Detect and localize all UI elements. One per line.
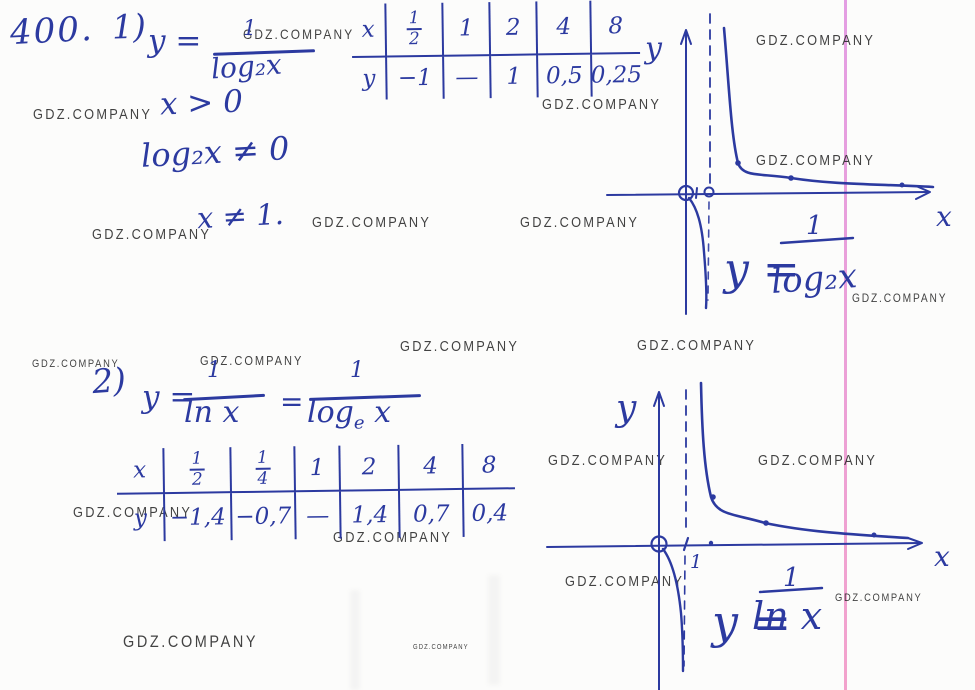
- curve-branch-left: [663, 549, 683, 671]
- vertical-asymptote-dashed-lower: [684, 556, 685, 666]
- watermark-text: GDZ.COMPANY: [400, 338, 519, 355]
- scan-smudge: [488, 575, 500, 685]
- graph1-formula-numerator: 1: [806, 211, 823, 241]
- table-cell: 12: [386, 3, 444, 58]
- data-point: [710, 494, 716, 500]
- table-cell: 1,4: [341, 491, 401, 539]
- table-cell: −1: [387, 57, 445, 100]
- table-cell: 1: [295, 446, 341, 493]
- graph-1: y x y = 1 log₂x: [595, 0, 975, 330]
- table-cell: y: [117, 494, 166, 542]
- table-cell: 4: [399, 444, 464, 491]
- part1-condition-log: log₂x ≠ 0: [140, 132, 290, 172]
- table-cell: x: [116, 448, 165, 495]
- table-cell: x: [351, 4, 387, 58]
- curve-branch-right: [724, 28, 933, 187]
- data-point: [763, 520, 769, 526]
- part2-fraction2-numerator: 1: [350, 360, 364, 382]
- scan-smudge: [350, 590, 360, 690]
- part2-equals-sign: =: [280, 388, 303, 416]
- part2-item-label: 2): [91, 363, 127, 398]
- x-axis-label: x: [936, 200, 952, 233]
- data-point: [900, 183, 905, 188]
- curve-branch-right: [701, 383, 908, 538]
- table-cell: 2: [490, 1, 538, 56]
- data-point: [788, 175, 794, 181]
- x-axis: [547, 543, 920, 547]
- part2-fraction2-denominator: loge x: [307, 398, 391, 432]
- x-axis: [607, 192, 928, 195]
- part1-item-label: 1): [111, 9, 146, 43]
- table-cell: 12: [164, 447, 232, 494]
- part1-condition-x: x ≠ 1.: [196, 200, 284, 234]
- table-cell: −0,7: [232, 492, 297, 540]
- value-table-2: x12141248y−1,4−0,7—1,40,70,4: [116, 443, 515, 542]
- data-point: [872, 533, 877, 538]
- part1-fraction-denominator: log₂x: [210, 51, 283, 84]
- log-argument: x: [374, 395, 391, 430]
- watermark-text: GDZ.COMPANY: [312, 214, 431, 231]
- watermark-text: GDZ.COMPANY: [413, 644, 469, 651]
- table-cell: —: [444, 56, 492, 99]
- table-cell: 0,4: [464, 489, 516, 537]
- watermark-text: GDZ.COMPANY: [92, 226, 211, 243]
- excluded-point-circle: [705, 188, 714, 197]
- log-base-subscript: e: [354, 412, 365, 433]
- axis-tick-x1: [684, 538, 688, 550]
- table-cell: 2: [340, 445, 400, 492]
- part1-equation-lhs: y =: [148, 26, 201, 57]
- table-cell: 1: [443, 2, 491, 57]
- axis-tick: [696, 188, 697, 198]
- scanned-notebook-page: GDZ.COMPANYGDZ.COMPANYGDZ.COMPANYGDZ.COM…: [0, 0, 975, 690]
- watermark-text: GDZ.COMPANY: [33, 106, 152, 123]
- watermark-text: GDZ.COMPANY: [243, 26, 354, 42]
- table-cell: 0,5: [538, 55, 593, 98]
- table-row-x: x12141248: [116, 443, 515, 495]
- fraction-value: 14: [255, 450, 271, 488]
- watermark-text: GDZ.COMPANY: [123, 632, 258, 652]
- data-point: [735, 160, 741, 166]
- part1-condition-domain: x > 0: [159, 87, 243, 121]
- table-cell: 4: [537, 1, 592, 56]
- table-cell: 1: [491, 55, 539, 98]
- part1-fraction-numerator: 1: [243, 18, 256, 39]
- y-axis-label: y: [614, 388, 637, 429]
- table-cell: —: [296, 492, 342, 540]
- graph1-formula-denominator: log₂x: [770, 256, 859, 302]
- x-axis-label: x: [934, 540, 950, 573]
- table-cell: 0,7: [400, 490, 465, 538]
- table-row-y: y−1,4−0,7—1,40,70,4: [117, 489, 516, 542]
- part2-fraction1-denominator: ln x: [184, 398, 239, 428]
- part2-fraction1-numerator: 1: [207, 360, 221, 382]
- problem-number: 400.: [9, 12, 94, 50]
- table-cell: y: [352, 58, 388, 100]
- fraction-value: 12: [189, 451, 205, 489]
- table-cell: 14: [231, 446, 296, 493]
- vertical-asymptote-dashed-lower: [708, 202, 709, 300]
- table-cell: 8: [463, 443, 515, 490]
- graph-2: y x 1 y = 1 ln x: [540, 358, 975, 690]
- tick-label-1: 1: [690, 551, 702, 573]
- log-function-name: log: [307, 395, 354, 430]
- watermark-text: GDZ.COMPANY: [637, 337, 756, 354]
- table-cell: −1,4: [165, 493, 233, 541]
- axis-point: [709, 541, 713, 545]
- fraction-value: 12: [406, 10, 422, 48]
- graph2-formula-denominator: ln x: [752, 594, 822, 638]
- y-axis-label: y: [643, 31, 663, 66]
- curve-branch-left: [689, 198, 706, 308]
